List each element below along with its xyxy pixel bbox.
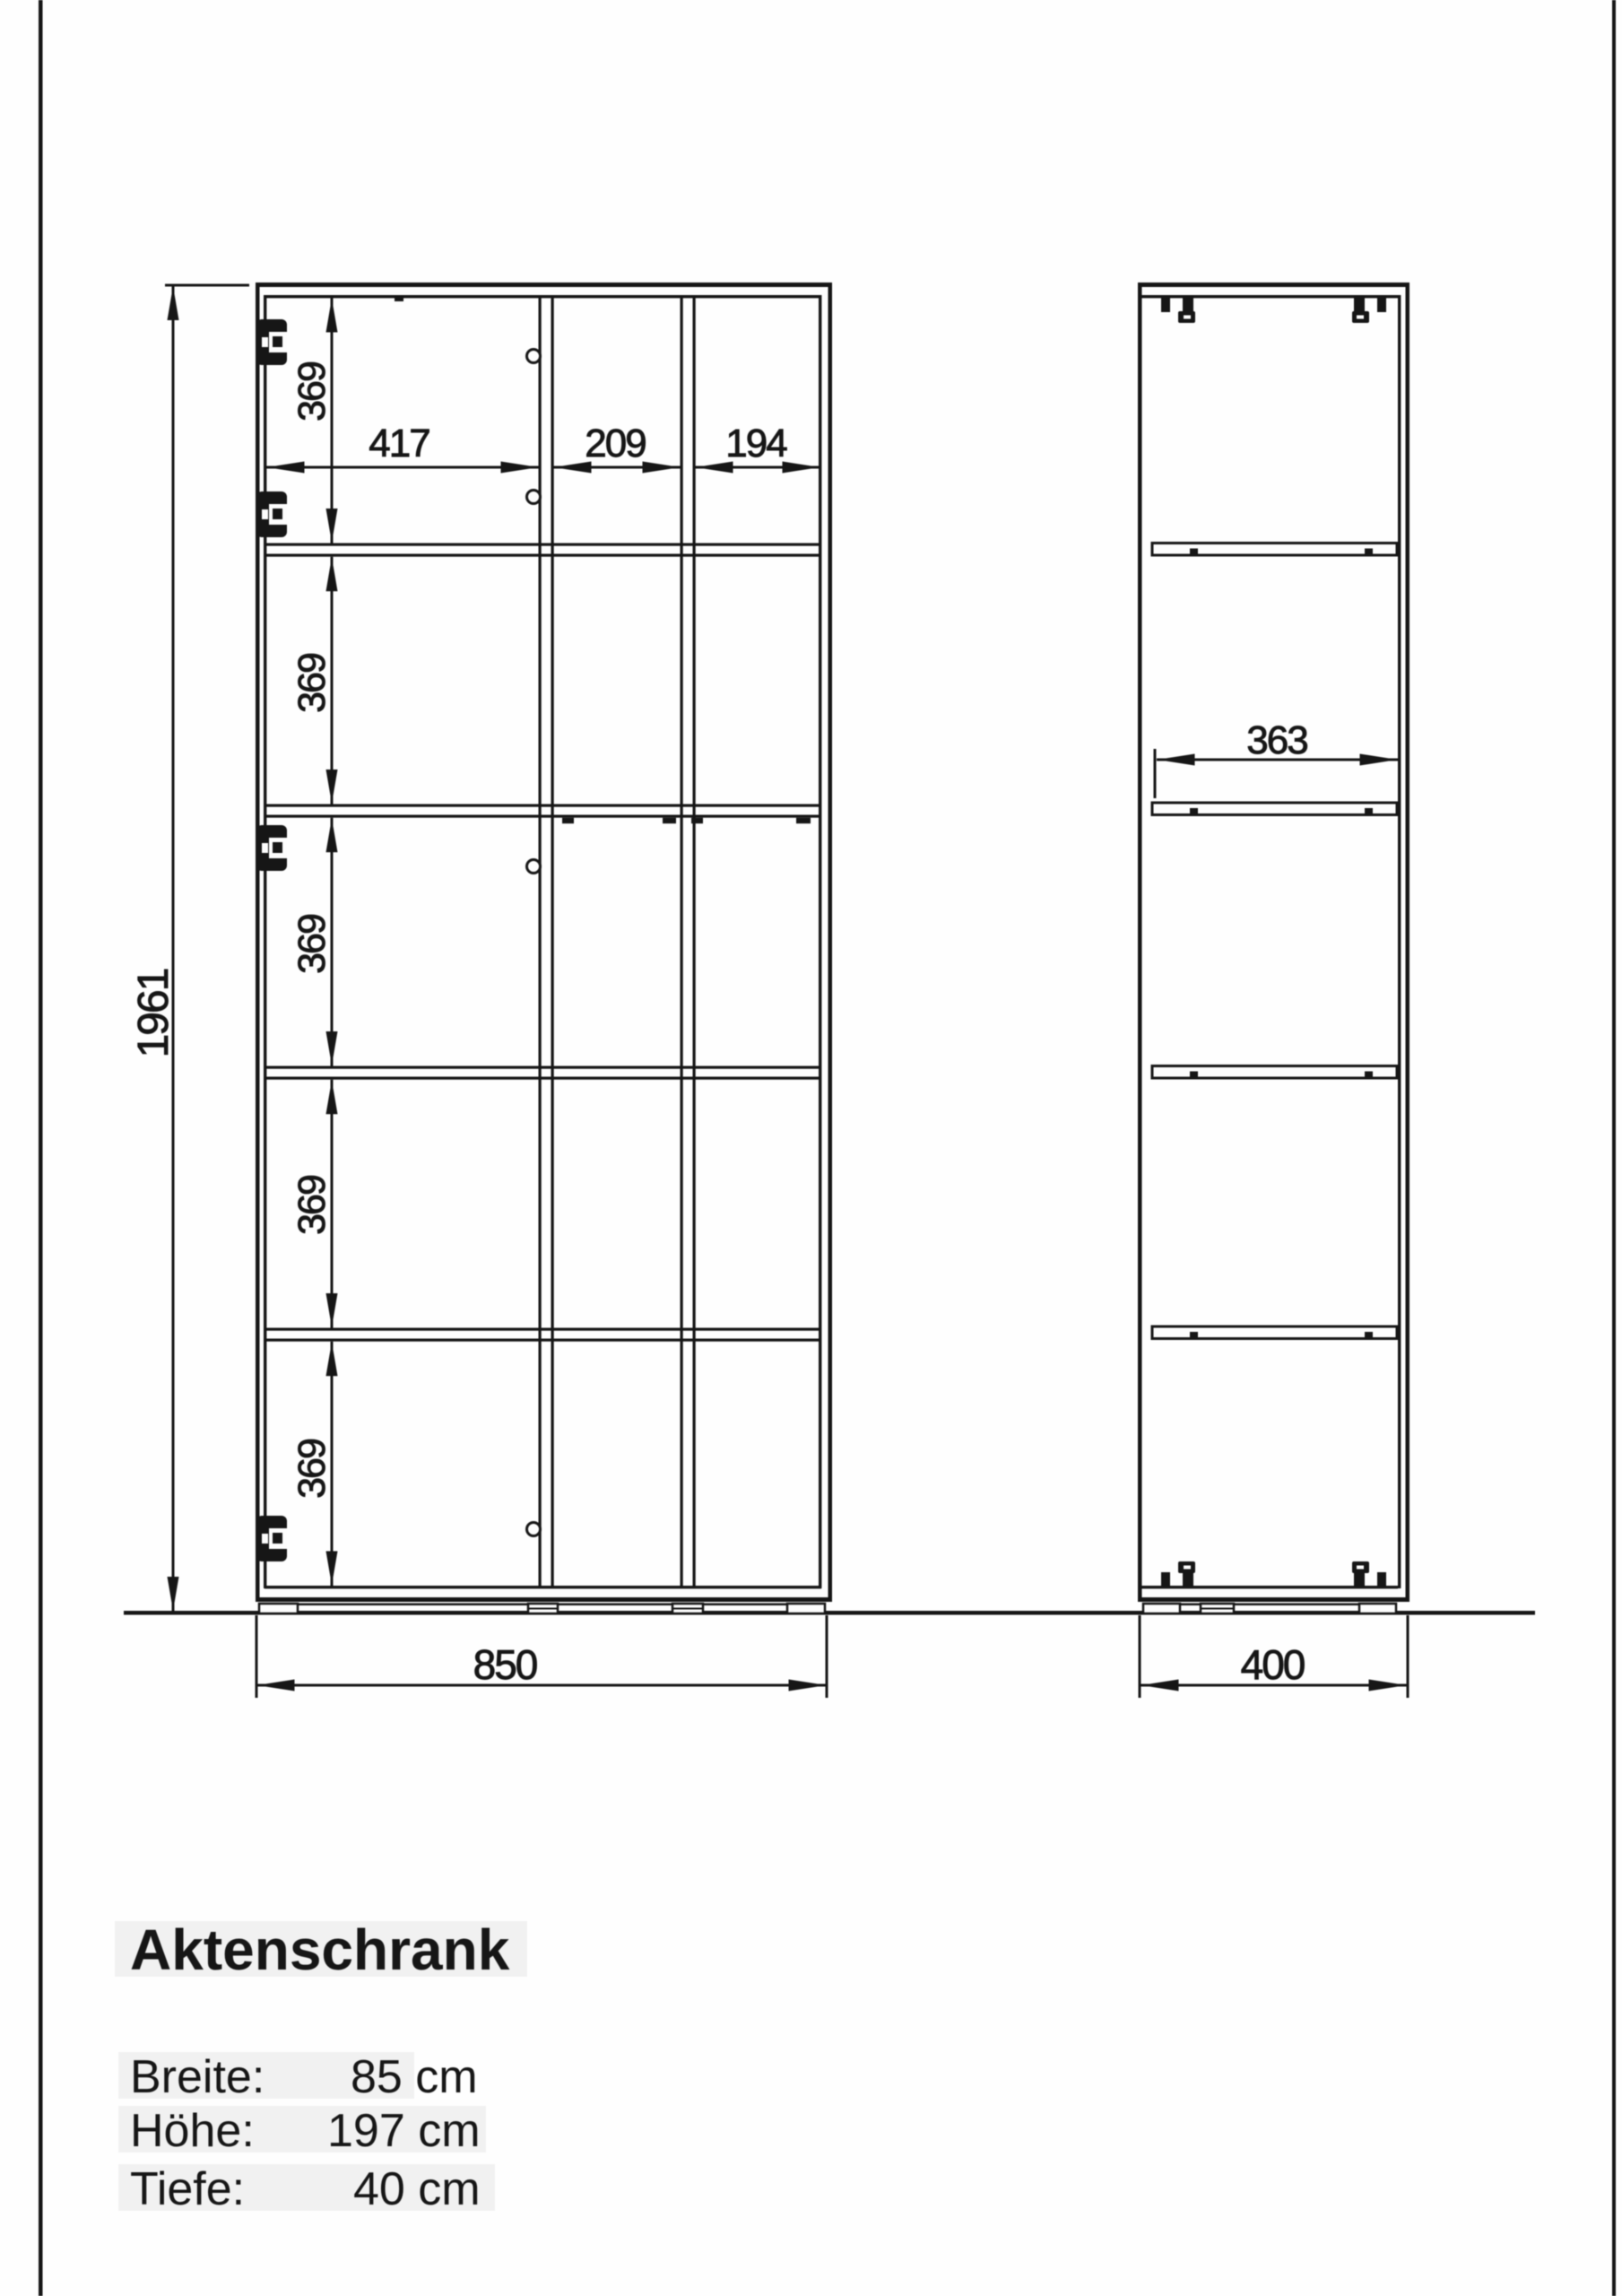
svg-text:369: 369: [291, 1176, 334, 1235]
svg-text:369: 369: [291, 915, 334, 974]
svg-text:369: 369: [291, 362, 334, 422]
svg-text:Tiefe:: Tiefe:: [130, 2163, 245, 2215]
svg-text:194: 194: [725, 422, 787, 465]
svg-text:369: 369: [291, 1439, 334, 1499]
svg-text:850: 850: [473, 1641, 537, 1688]
svg-text:417: 417: [369, 422, 429, 465]
svg-text:Breite:: Breite:: [130, 2051, 265, 2103]
svg-text:Aktenschrank: Aktenschrank: [130, 1918, 510, 1982]
svg-text:Höhe:: Höhe:: [130, 2105, 255, 2157]
svg-text:1961: 1961: [130, 969, 178, 1057]
svg-text:40 cm: 40 cm: [353, 2163, 481, 2215]
svg-text:363: 363: [1246, 718, 1307, 762]
svg-text:400: 400: [1241, 1641, 1305, 1688]
svg-text:197 cm: 197 cm: [327, 2105, 481, 2157]
svg-text:369: 369: [291, 654, 334, 713]
svg-text:209: 209: [585, 422, 646, 465]
svg-text:85 cm: 85 cm: [351, 2051, 478, 2103]
